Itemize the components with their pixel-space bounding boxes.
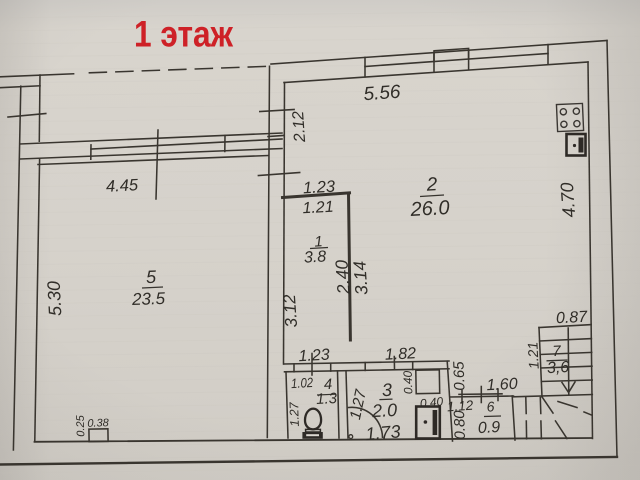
svg-text:5.30: 5.30 bbox=[44, 281, 66, 317]
svg-text:2.0: 2.0 bbox=[371, 400, 398, 421]
svg-text:5.56: 5.56 bbox=[363, 82, 402, 106]
svg-text:3.14: 3.14 bbox=[349, 260, 371, 296]
svg-text:3,6: 3,6 bbox=[547, 359, 570, 377]
svg-text:0.40: 0.40 bbox=[401, 370, 416, 394]
svg-text:1.21: 1.21 bbox=[524, 341, 541, 369]
svg-text:1.60: 1.60 bbox=[486, 376, 518, 395]
svg-text:4.45: 4.45 bbox=[106, 176, 140, 196]
svg-text:1.3: 1.3 bbox=[316, 390, 338, 408]
svg-text:0.87: 0.87 bbox=[556, 309, 589, 328]
svg-text:0.38: 0.38 bbox=[87, 417, 110, 430]
svg-text:26.0: 26.0 bbox=[409, 197, 450, 221]
svg-text:1.23: 1.23 bbox=[303, 178, 337, 198]
svg-text:2.12: 2.12 bbox=[290, 110, 309, 143]
svg-text:1 этаж: 1 этаж bbox=[134, 14, 234, 55]
svg-text:1.02: 1.02 bbox=[291, 375, 314, 391]
svg-text:1.27: 1.27 bbox=[287, 401, 302, 427]
svg-text:7: 7 bbox=[552, 343, 562, 360]
svg-text:23.5: 23.5 bbox=[131, 289, 166, 309]
svg-text:0.9: 0.9 bbox=[477, 419, 500, 437]
svg-text:1.21: 1.21 bbox=[302, 199, 334, 218]
svg-text:3.8: 3.8 bbox=[304, 248, 327, 266]
svg-text:4.70: 4.70 bbox=[557, 182, 579, 218]
svg-text:0.65: 0.65 bbox=[450, 360, 468, 390]
svg-text:1.23: 1.23 bbox=[298, 347, 330, 366]
svg-text:2: 2 bbox=[425, 174, 438, 196]
svg-text:0.25: 0.25 bbox=[75, 414, 88, 437]
svg-text:1.82: 1.82 bbox=[384, 345, 416, 364]
svg-text:5: 5 bbox=[146, 267, 158, 287]
svg-text:0.80: 0.80 bbox=[451, 409, 469, 439]
svg-text:3.12: 3.12 bbox=[280, 293, 301, 328]
svg-text:3: 3 bbox=[381, 380, 392, 400]
svg-text:6: 6 bbox=[486, 398, 495, 414]
svg-text:0.40: 0.40 bbox=[419, 394, 444, 410]
svg-text:1.73: 1.73 bbox=[365, 421, 402, 444]
